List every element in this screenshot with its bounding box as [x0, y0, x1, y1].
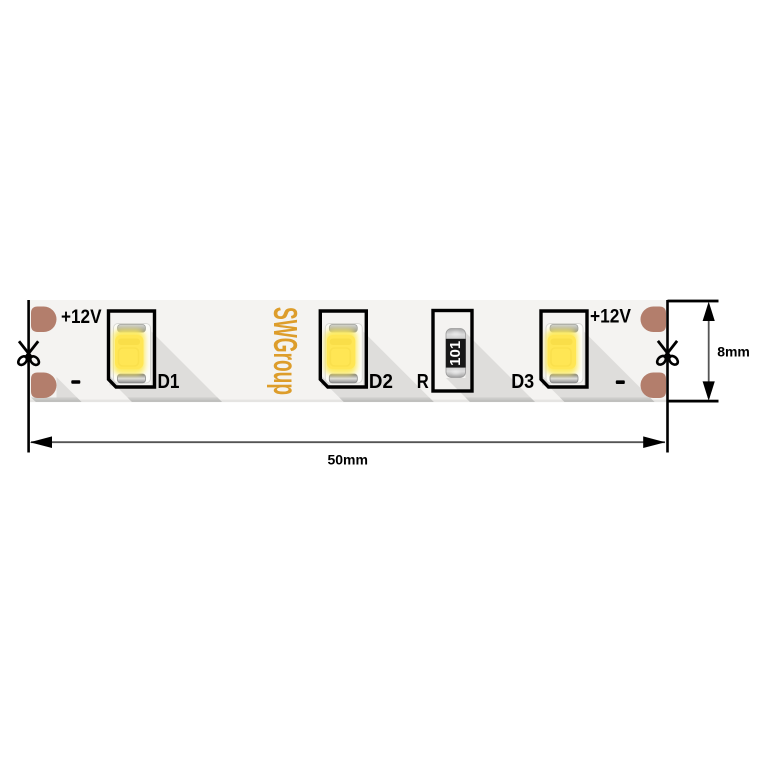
- svg-text:+12V: +12V: [590, 306, 631, 328]
- svg-text:R: R: [417, 370, 429, 393]
- svg-text:D3: D3: [511, 370, 534, 393]
- svg-text:SWGroup: SWGroup: [267, 307, 304, 395]
- svg-text:D1: D1: [158, 370, 180, 393]
- svg-text:101: 101: [447, 341, 464, 366]
- svg-text:8mm: 8mm: [717, 343, 750, 359]
- svg-text:+12V: +12V: [61, 306, 102, 328]
- svg-text:50mm: 50mm: [327, 452, 367, 468]
- svg-text:D2: D2: [369, 370, 393, 393]
